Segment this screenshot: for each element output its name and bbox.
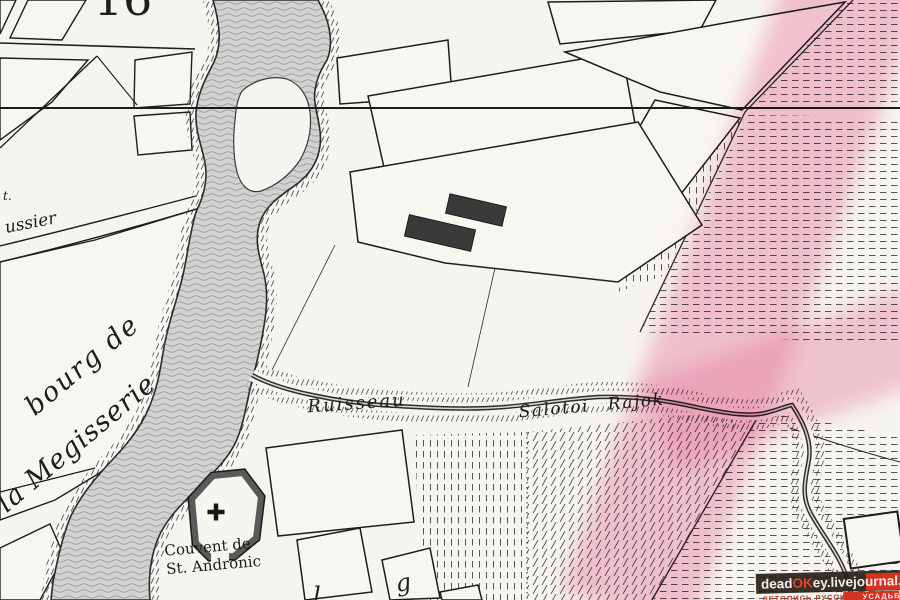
cutoff-letter-l: l bbox=[313, 582, 321, 600]
city-block bbox=[134, 52, 192, 108]
watermark-part: OK bbox=[792, 575, 813, 591]
street-label-fragment: t. bbox=[3, 189, 12, 203]
city-block bbox=[266, 430, 414, 536]
map-canvas: 16 t. ussier bourg de la Megisserie Ruis… bbox=[0, 0, 900, 600]
watermark-tagline-part: ЛЕТОПИСЬ РУССКОЙ bbox=[762, 592, 859, 600]
watermark-part: dead bbox=[761, 576, 793, 592]
watermark: deadOKey.livejournal.com ЛЕТОПИСЬ РУССКО… bbox=[756, 569, 900, 600]
city-block bbox=[134, 112, 192, 155]
watermark-tagline-part: УСАДЬБЫ bbox=[863, 591, 900, 600]
city-block bbox=[297, 528, 372, 600]
cross-icon bbox=[214, 504, 219, 521]
watermark-part: .livejournal bbox=[827, 573, 899, 590]
plate-number-label: 16 bbox=[94, 0, 153, 26]
